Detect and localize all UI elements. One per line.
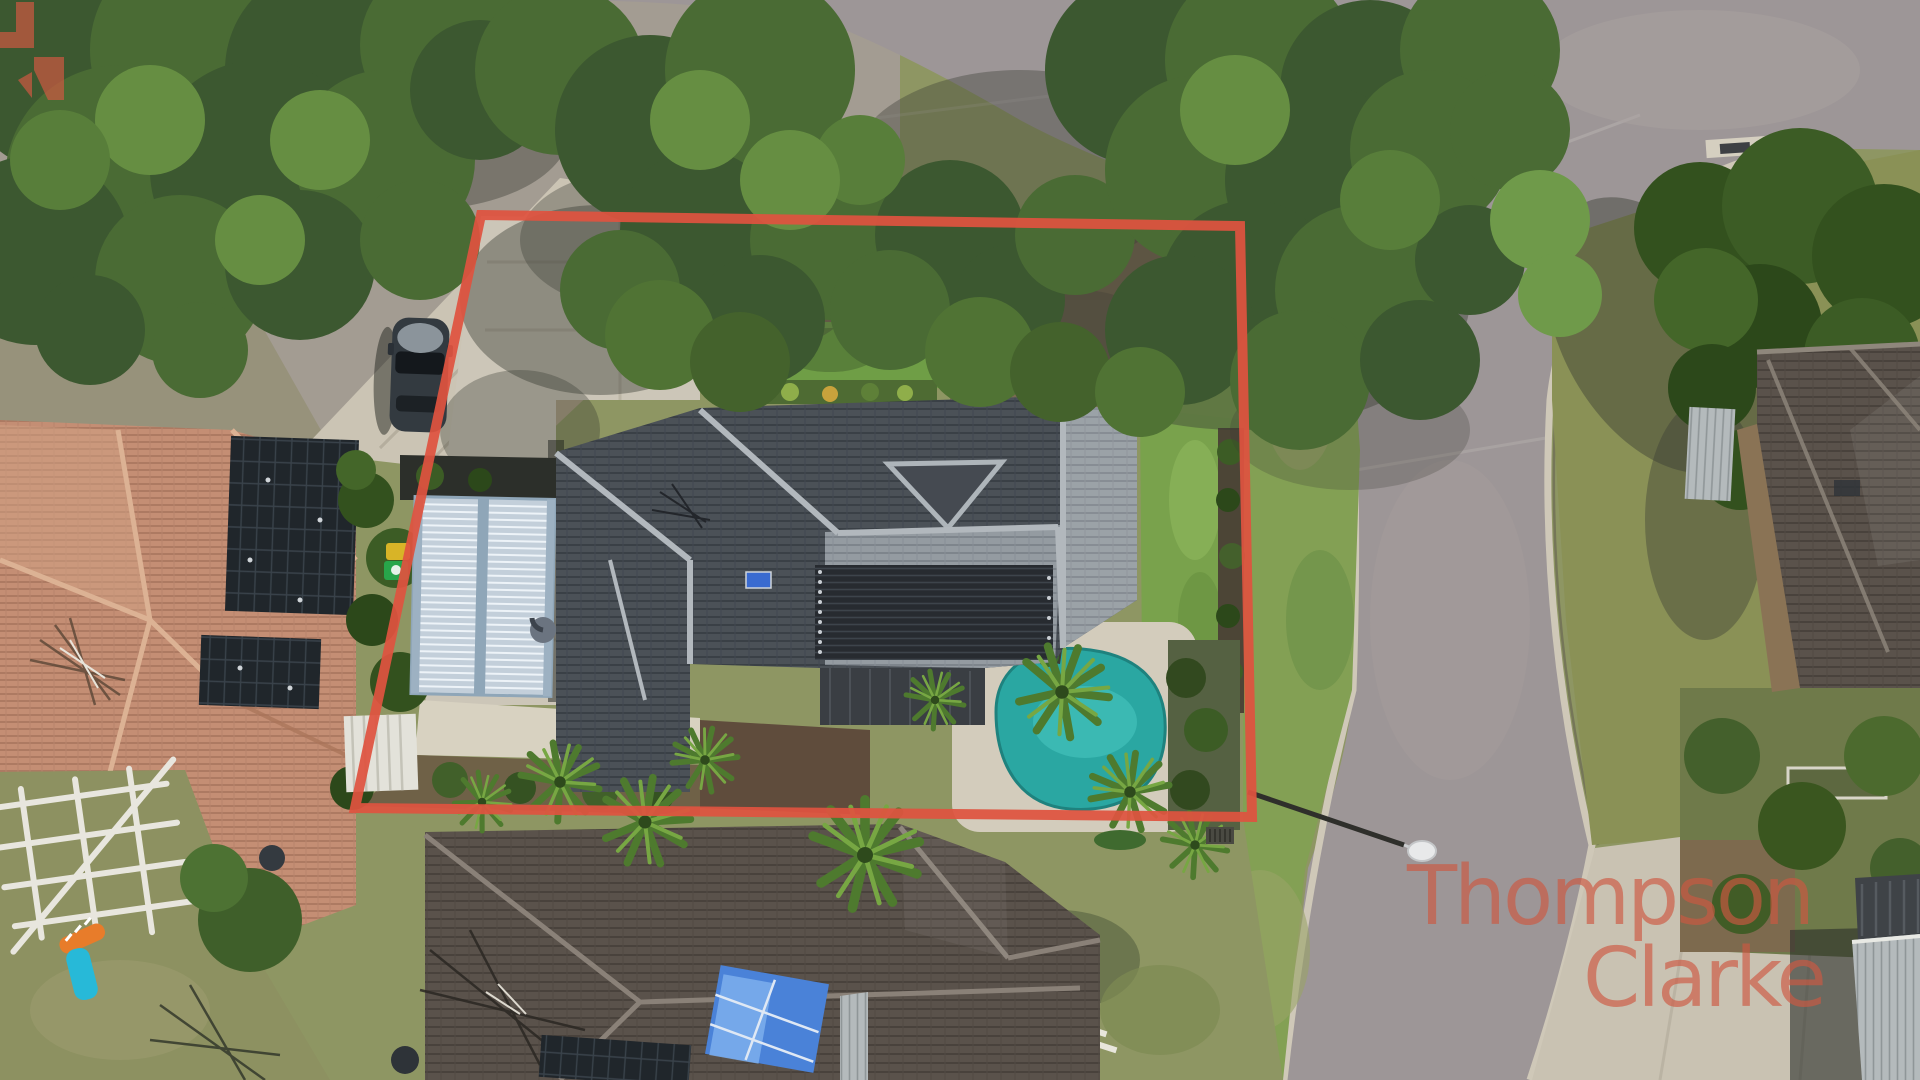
- gray-metal-roof: [840, 992, 868, 1080]
- white-awning: [344, 714, 419, 792]
- satellite-dish: [259, 845, 285, 871]
- scene: [0, 0, 1920, 1080]
- roof-window: [1834, 480, 1860, 496]
- blue-garage-roof: [411, 497, 555, 697]
- pool-solar-collector: [815, 565, 1053, 660]
- light-metal-roof: [1852, 934, 1920, 1080]
- lamp-head: [1408, 841, 1436, 861]
- small-white-shed-roof: [1685, 407, 1736, 501]
- patio-roof: [820, 668, 985, 725]
- small-solar-panel: [746, 572, 771, 588]
- dark-ribbed-roof: [1855, 874, 1920, 940]
- bottom-house: [391, 824, 1100, 1080]
- aerial-photo: Thompson Clarke: [0, 0, 1920, 1080]
- storm-grate: [1206, 827, 1234, 844]
- satellite-dish-2: [391, 1046, 419, 1074]
